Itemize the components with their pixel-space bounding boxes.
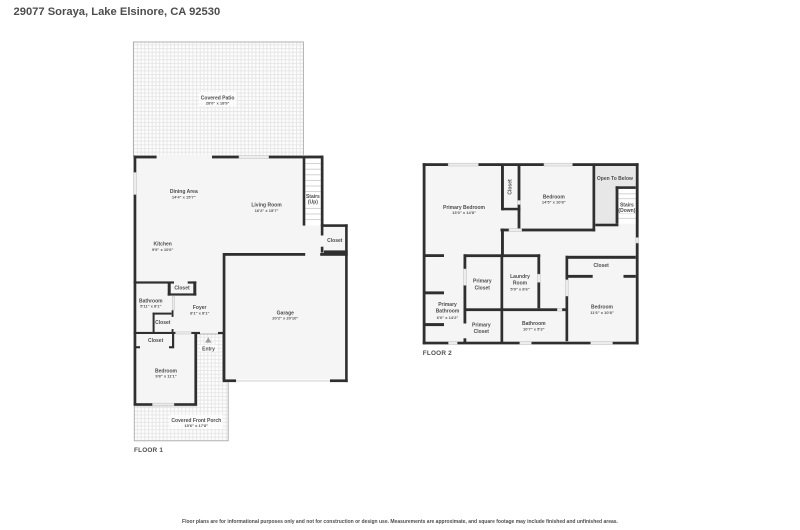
svg-text:(Down): (Down): [618, 208, 635, 214]
svg-text:14'4" x 15'7": 14'4" x 15'7": [172, 194, 196, 199]
svg-text:Closet: Closet: [594, 263, 610, 269]
svg-text:8'1" x 8'1": 8'1" x 8'1": [190, 311, 209, 316]
svg-text:14'5" x 10'8": 14'5" x 10'8": [542, 199, 566, 204]
svg-text:(Up): (Up): [308, 199, 318, 205]
svg-text:6'6" x 14'2": 6'6" x 14'2": [437, 315, 459, 320]
svg-text:Bathroom: Bathroom: [436, 309, 460, 315]
svg-text:13'0" x 14'8": 13'0" x 14'8": [452, 210, 476, 215]
svg-text:20'2" x 20'10": 20'2" x 20'10": [272, 316, 298, 321]
svg-text:Entry: Entry: [202, 346, 215, 352]
svg-text:Closet: Closet: [148, 338, 164, 344]
svg-text:5'11" x 8'1": 5'11" x 8'1": [140, 304, 161, 309]
svg-text:FLOOR 1: FLOOR 1: [134, 447, 163, 454]
svg-text:Closet: Closet: [475, 285, 491, 291]
svg-text:10'7" x 5'3": 10'7" x 5'3": [523, 326, 545, 331]
svg-text:Primary: Primary: [473, 279, 492, 285]
svg-text:Closet: Closet: [507, 179, 513, 195]
svg-text:Open To Below: Open To Below: [597, 176, 633, 182]
svg-text:Closet: Closet: [474, 329, 490, 335]
svg-text:16'2" x 15'7": 16'2" x 15'7": [255, 208, 279, 213]
svg-text:28'0" x 18'9": 28'0" x 18'9": [206, 101, 230, 106]
svg-text:Floor plans are for informatio: Floor plans are for informational purpos…: [182, 519, 619, 525]
svg-text:Primary: Primary: [438, 302, 457, 308]
svg-text:FLOOR 2: FLOOR 2: [423, 350, 452, 357]
svg-text:11'6" x 10'8": 11'6" x 10'8": [590, 310, 614, 315]
svg-text:9'9" x 10'6": 9'9" x 10'6": [152, 247, 174, 252]
svg-text:29077 Soraya, Lake Elsinore, C: 29077 Soraya, Lake Elsinore, CA 92530: [14, 6, 221, 18]
svg-text:Closet: Closet: [155, 320, 171, 326]
svg-text:15'6" x 17'8": 15'6" x 17'8": [184, 423, 208, 428]
svg-text:Closet: Closet: [327, 238, 343, 244]
svg-text:Primary: Primary: [472, 323, 491, 329]
svg-text:Closet: Closet: [174, 286, 190, 292]
svg-text:Laundry: Laundry: [510, 274, 530, 280]
svg-text:5'9" x 8'6": 5'9" x 8'6": [510, 287, 529, 292]
svg-text:9'8" x 11'1": 9'8" x 11'1": [155, 374, 176, 379]
